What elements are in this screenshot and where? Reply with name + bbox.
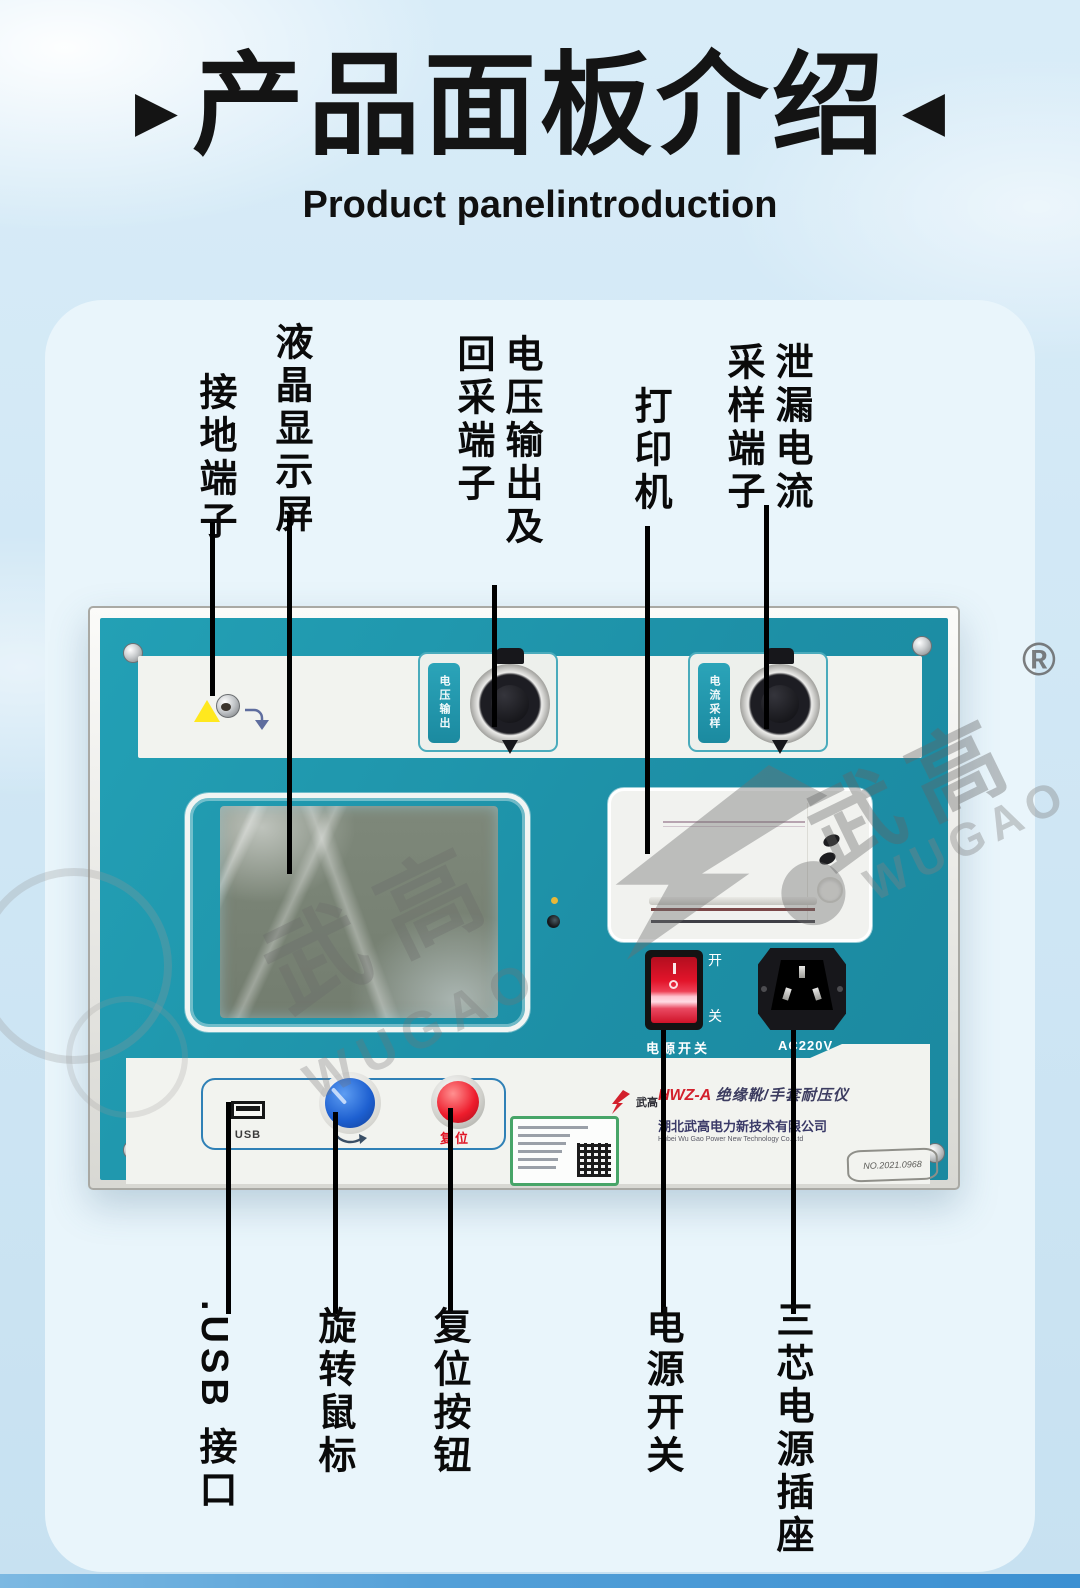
model-name: 绝缘靴/手套耐压仪 xyxy=(716,1087,849,1104)
socket-screw xyxy=(837,986,843,992)
bottom-accent-bar xyxy=(0,1574,1080,1588)
current-connector-label: 电流采样 xyxy=(706,675,722,731)
connector-cap-tail xyxy=(502,740,518,754)
leader-line-lcd xyxy=(287,512,292,874)
lcd-screen xyxy=(220,806,498,1018)
current-connector-label-strip: 电流采样 xyxy=(698,663,730,743)
status-led-dark xyxy=(547,915,560,928)
connector-cap-tail xyxy=(772,740,788,754)
callout-usb-port: .USB 接口 xyxy=(192,1300,236,1512)
callout-power-switch: 电源开关 xyxy=(639,1306,683,1478)
rotation-arrow-icon xyxy=(333,1132,369,1147)
current-sampling-connector-block: 电流采样 xyxy=(688,652,828,752)
voltage-output-connector xyxy=(481,675,539,733)
callout-power-socket: 三芯电源插座 xyxy=(769,1300,813,1558)
leader-line-usb xyxy=(226,1102,231,1314)
printer-led xyxy=(817,850,837,867)
leader-line-voltage xyxy=(492,585,497,727)
company-name-en: Hubei Wu Gao Power New Technology Co.,Lt… xyxy=(658,1136,827,1143)
switch-off-mark xyxy=(669,980,678,989)
callout-reset-button: 复位按钮 xyxy=(426,1306,470,1478)
leader-line-ground xyxy=(210,522,215,696)
leader-line-knob xyxy=(333,1112,338,1314)
ac-power-socket xyxy=(758,948,846,1030)
voltage-connector-label: 电压输出 xyxy=(436,675,452,731)
reset-button xyxy=(437,1081,479,1123)
callout-lcd-display: 液晶显示屏 xyxy=(268,322,312,537)
page-title: 产品面板介绍 xyxy=(192,42,888,171)
usb-port xyxy=(231,1101,265,1119)
socket-pin xyxy=(799,966,805,978)
ground-terminal xyxy=(216,694,240,718)
callout-ground-terminal: 接地端子 xyxy=(192,372,236,544)
callout-voltage-output-col2: 回采端子 xyxy=(450,334,494,506)
poster-page: ▶ 产品面板介绍 ◀ Product panelintroduction 接地端… xyxy=(0,0,1080,1588)
brand-mark-text: 武高 xyxy=(636,1094,658,1110)
callout-printer: 打印机 xyxy=(627,386,671,515)
certification-sticker xyxy=(510,1116,619,1186)
connector-cap-tab xyxy=(496,648,524,664)
callout-leakage-current-col2: 采样端子 xyxy=(720,342,764,514)
printer-feed-button xyxy=(817,877,843,903)
arrow-right-icon: ▶ xyxy=(135,73,178,139)
callout-rotary-mouse: 旋转鼠标 xyxy=(311,1306,355,1478)
printer-paper-bar xyxy=(649,897,817,905)
connector-cap-tab xyxy=(766,648,794,664)
serial-number: NO.2021.0968 xyxy=(863,1159,922,1171)
switch-on-mark xyxy=(673,963,676,974)
leader-line-socket xyxy=(791,1030,796,1314)
corner-screw xyxy=(912,636,932,656)
socket-screw xyxy=(761,986,767,992)
model-line: HWZ-A 绝缘靴/手套耐压仪 xyxy=(658,1084,849,1105)
qr-code xyxy=(577,1143,611,1177)
leader-line-printer xyxy=(645,526,650,854)
printer-slot-line xyxy=(663,826,805,827)
printer-slot-line xyxy=(663,821,805,823)
voltage-connector-label-strip: 电压输出 xyxy=(428,663,460,743)
brand-mark-row: 武高 xyxy=(610,1090,658,1114)
brand-lightning-icon xyxy=(610,1090,632,1114)
power-switch xyxy=(645,950,703,1030)
voltage-output-connector-block: 电压输出 xyxy=(418,652,558,752)
printer-paper-slot xyxy=(651,908,815,911)
status-led-yellow xyxy=(551,897,558,904)
page-subtitle: Product panelintroduction xyxy=(0,184,1080,227)
callout-leakage-current-col1: 泄漏电流 xyxy=(768,342,812,514)
switch-on-char: 开 xyxy=(708,950,722,970)
power-switch-rocker xyxy=(651,957,697,1023)
usb-port-label: USB xyxy=(228,1129,268,1141)
serial-nameplate: NO.2021.0968 xyxy=(846,1147,938,1182)
leader-line-power-switch xyxy=(661,1030,666,1314)
printer-led xyxy=(821,832,841,849)
reset-button-label: 复位 xyxy=(440,1128,470,1147)
page-title-row: ▶ 产品面板介绍 ◀ xyxy=(0,42,1080,171)
callout-voltage-output-col1: 电压输出及 xyxy=(498,334,542,549)
leader-line-leakage xyxy=(764,505,769,729)
power-switch-label: 电源开关 xyxy=(646,1038,710,1057)
leader-line-reset xyxy=(448,1108,453,1314)
company-block: 湖北武高电力新技术有限公司 Hubei Wu Gao Power New Tec… xyxy=(658,1116,827,1143)
arrow-left-icon: ◀ xyxy=(902,73,945,139)
ac220v-label: AC220V xyxy=(778,1038,833,1053)
printer-paper-slot xyxy=(651,920,815,923)
company-name-cn: 湖北武高电力新技术有限公司 xyxy=(658,1116,827,1135)
ground-arrow-icon xyxy=(242,706,270,732)
switch-off-char: 关 xyxy=(708,1006,722,1026)
current-sampling-connector xyxy=(751,675,809,733)
